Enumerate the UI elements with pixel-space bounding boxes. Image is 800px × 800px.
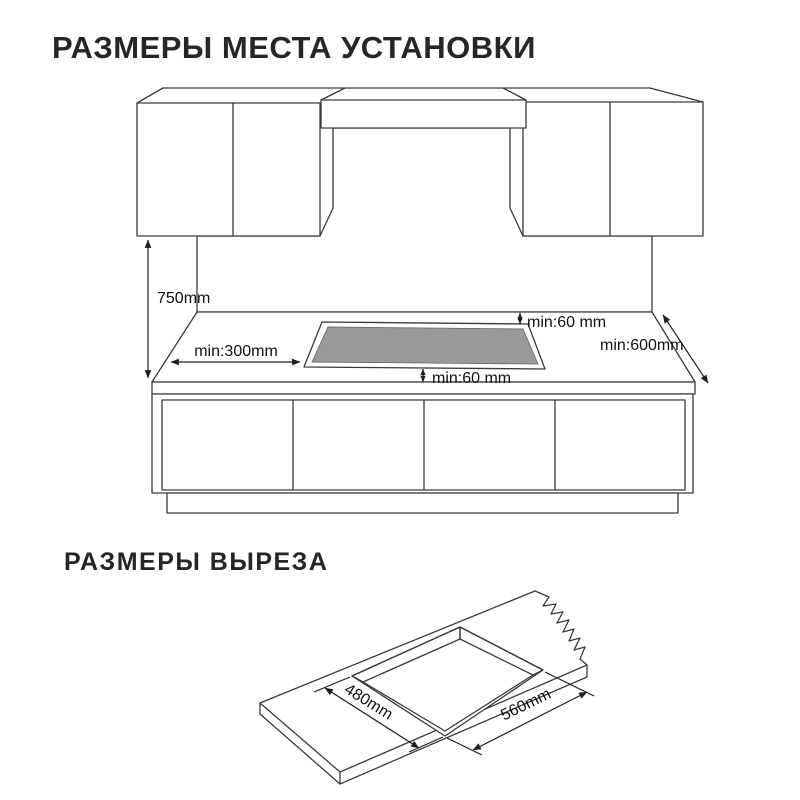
cooktop [304, 322, 545, 369]
dimension-front-clearance: min:60 mm [423, 369, 511, 387]
installation-diagram: 750mm min:300mm min:60 mm min:600mm min:… [137, 88, 708, 513]
base-cabinet [152, 394, 693, 513]
diagrams-canvas: 750mm min:300mm min:60 mm min:600mm min:… [0, 0, 800, 800]
dimension-label-300: min:300mm [194, 343, 278, 360]
dimension-back-clearance: min:60 mm [520, 313, 606, 331]
upper-cabinet-right [523, 102, 703, 236]
cooktop-glass [312, 327, 538, 364]
dimension-label-60-back: min:60 mm [527, 314, 606, 331]
dimension-label-750: 750mm [157, 290, 210, 307]
cutout-diagram: 480mm 560mm [260, 591, 594, 784]
countertop-front-edge [152, 382, 695, 394]
page: { "page": {"background": "#ffffff", "lin… [0, 0, 800, 800]
dimension-label-60-front: min:60 mm [432, 370, 511, 387]
base-cabinet-plinth [167, 493, 678, 513]
cooker-hood [321, 100, 526, 128]
dimension-label-600: min:600mm [600, 337, 684, 354]
upper-cabinet-left [137, 103, 320, 236]
